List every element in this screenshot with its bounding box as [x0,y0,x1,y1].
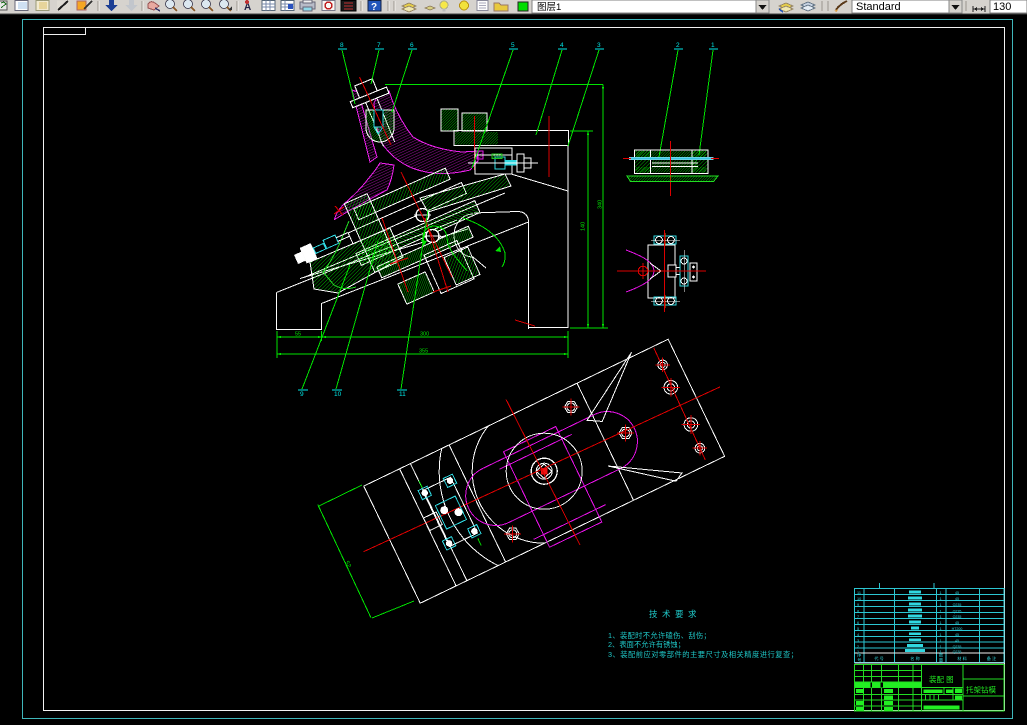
svg-text:2、表面不允许有锈蚀；: 2、表面不允许有锈蚀； [608,640,685,649]
svg-text:1: 1 [940,609,942,613]
svg-text:9: 9 [857,603,859,607]
svg-text:1: 1 [940,645,942,649]
svg-text:8: 8 [340,42,344,49]
svg-text:3: 3 [597,42,601,49]
svg-text:10: 10 [334,391,342,398]
svg-text:1: 1 [940,603,942,607]
svg-text:3、装配前应对零部件的主要尺寸及相关精度进行复查；: 3、装配前应对零部件的主要尺寸及相关精度进行复查； [608,650,798,659]
svg-text:45: 45 [955,621,959,625]
svg-text:4: 4 [857,633,859,637]
svg-text:45: 45 [955,597,959,601]
svg-text:1: 1 [940,591,942,595]
svg-text:1: 1 [940,633,942,637]
svg-text:Q235: Q235 [953,645,962,649]
svg-text:Q235: Q235 [953,650,962,654]
svg-text:140: 140 [581,222,587,231]
svg-text:2: 2 [857,645,859,649]
svg-text:1: 1 [940,639,942,643]
svg-text:340: 340 [598,200,604,209]
svg-text:9: 9 [300,391,304,398]
svg-text:10: 10 [857,597,861,601]
svg-text:1: 1 [711,42,715,49]
svg-text:技术要求: 技术要求 [649,609,701,619]
svg-text:?: ? [371,2,377,13]
svg-text:55: 55 [295,332,301,338]
svg-text:5: 5 [857,627,859,631]
svg-text:代 号: 代 号 [874,655,884,662]
svg-text:材 料: 材 料 [957,655,967,662]
svg-text:4: 4 [560,42,564,49]
svg-text:6: 6 [857,621,859,625]
svg-text:11: 11 [399,391,406,398]
svg-text:45: 45 [955,633,959,637]
svg-text:Q235: Q235 [953,615,962,619]
svg-text:3: 3 [857,639,859,643]
svg-text:托架钻模: 托架钻模 [966,685,996,695]
svg-text:11: 11 [857,591,861,595]
svg-text:1: 1 [940,597,942,601]
svg-text:355: 355 [419,349,428,355]
svg-text:图层1: 图层1 [537,2,561,13]
svg-text:300: 300 [420,332,429,338]
svg-text:1、装配时不允许磕伤、刮伤；: 1、装配时不允许磕伤、刮伤； [608,631,711,640]
svg-text:1: 1 [940,621,942,625]
svg-text:5: 5 [511,42,515,49]
svg-text:7: 7 [377,42,381,49]
svg-text:1: 1 [940,627,942,631]
svg-text:名 称: 名 称 [910,655,920,662]
svg-text:130: 130 [993,1,1011,13]
svg-text:Q235: Q235 [953,603,962,607]
svg-text:8: 8 [857,609,859,613]
svg-text:45: 45 [955,639,959,643]
svg-text:7: 7 [857,615,859,619]
svg-text:Standard: Standard [856,1,901,13]
svg-text:装配 图: 装配 图 [929,674,954,684]
svg-text:Q235: Q235 [953,609,962,613]
svg-text:2: 2 [676,42,680,49]
svg-text:HT200: HT200 [952,627,963,631]
svg-text:6: 6 [410,42,414,49]
svg-text:1: 1 [940,615,942,619]
svg-text:备 注: 备 注 [987,655,997,662]
svg-text:45: 45 [955,591,959,595]
